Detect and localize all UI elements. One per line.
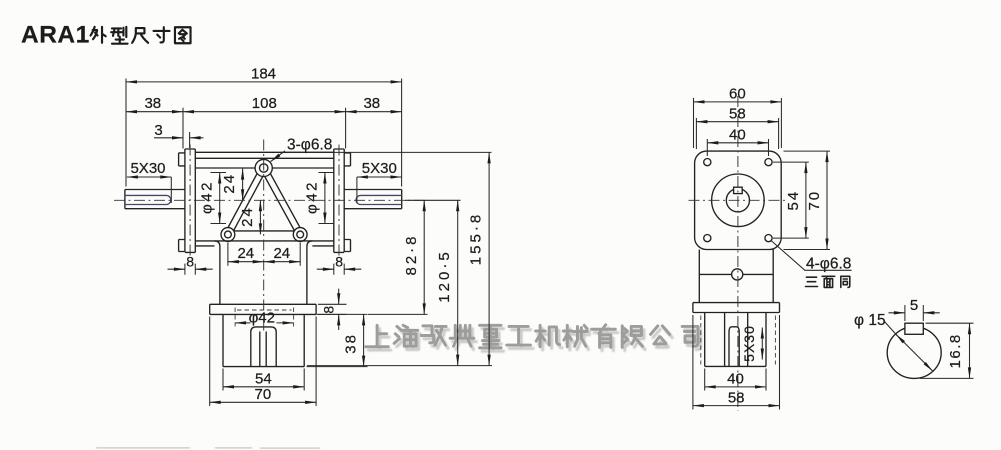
svg-text:40: 40 bbox=[729, 127, 746, 144]
svg-text:5X30: 5X30 bbox=[130, 160, 165, 177]
svg-text:70: 70 bbox=[255, 386, 272, 403]
svg-text:8: 8 bbox=[320, 306, 336, 314]
svg-text:4-φ6.8: 4-φ6.8 bbox=[806, 255, 851, 272]
svg-text:24: 24 bbox=[221, 173, 238, 194]
svg-text:5: 5 bbox=[910, 297, 918, 314]
svg-text:82·8: 82·8 bbox=[403, 233, 420, 275]
svg-text:ARA1: ARA1 bbox=[21, 22, 90, 49]
svg-text:184: 184 bbox=[251, 65, 276, 82]
svg-text:58: 58 bbox=[728, 390, 745, 407]
svg-text:16.8: 16.8 bbox=[947, 333, 964, 368]
svg-text:38: 38 bbox=[363, 95, 380, 112]
svg-text:70: 70 bbox=[806, 190, 823, 211]
svg-text:8: 8 bbox=[335, 253, 343, 269]
svg-text:5X30: 5X30 bbox=[362, 160, 397, 177]
svg-text:38: 38 bbox=[144, 95, 161, 112]
svg-text:54: 54 bbox=[785, 190, 802, 211]
svg-text:φ42: φ42 bbox=[249, 309, 275, 326]
svg-text:24: 24 bbox=[273, 245, 290, 262]
svg-text:3: 3 bbox=[154, 122, 162, 139]
svg-text:φ42: φ42 bbox=[304, 180, 321, 214]
svg-text:155·8: 155·8 bbox=[468, 212, 485, 265]
svg-text:120·5: 120·5 bbox=[436, 249, 453, 302]
svg-text:3-φ6.8: 3-φ6.8 bbox=[287, 137, 332, 154]
svg-text:58: 58 bbox=[729, 105, 746, 122]
svg-text:24: 24 bbox=[237, 245, 254, 262]
svg-text:8: 8 bbox=[186, 253, 194, 269]
svg-text:60: 60 bbox=[729, 86, 746, 103]
svg-text:5X30: 5X30 bbox=[741, 325, 757, 362]
svg-text:φ 15: φ 15 bbox=[854, 312, 886, 329]
svg-text:40: 40 bbox=[727, 371, 744, 388]
svg-text:38: 38 bbox=[342, 333, 359, 354]
svg-text:φ42: φ42 bbox=[198, 180, 215, 214]
svg-text:24: 24 bbox=[239, 206, 256, 227]
svg-text:108: 108 bbox=[252, 95, 277, 112]
